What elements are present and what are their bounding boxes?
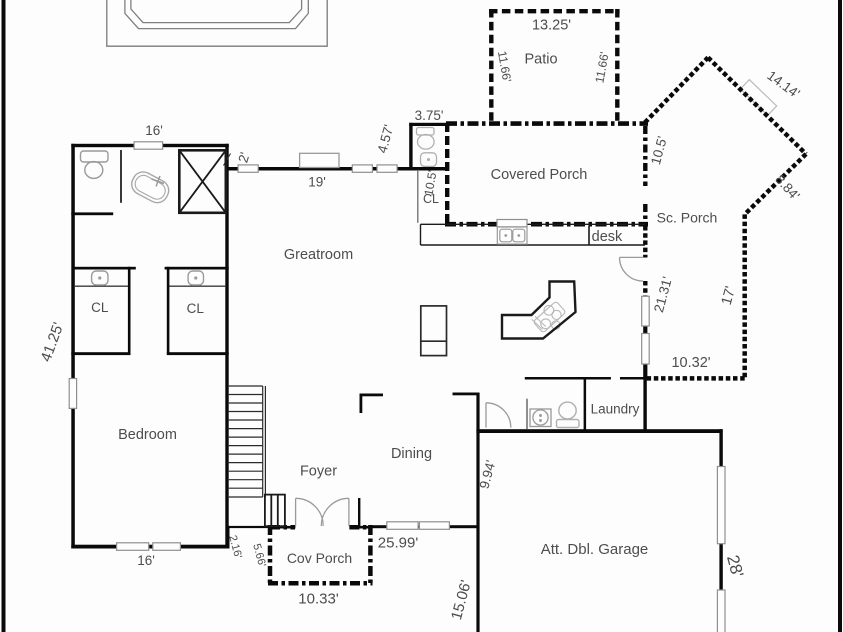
svg-text:Att. Dbl. Garage: Att. Dbl. Garage [541,541,649,558]
svg-text:19': 19' [308,175,326,190]
svg-text:Cov Porch: Cov Porch [287,550,352,566]
svg-text:Laundry: Laundry [591,402,640,417]
svg-text:Patio: Patio [524,52,557,68]
svg-text:desk: desk [592,229,623,245]
svg-text:16': 16' [145,123,163,138]
svg-text:10.33': 10.33' [298,591,339,608]
svg-text:16': 16' [137,553,155,568]
svg-text:Sc. Porch: Sc. Porch [657,210,718,226]
svg-text:Covered Porch: Covered Porch [491,167,588,183]
svg-text:10.32': 10.32' [671,355,710,371]
svg-text:CL: CL [91,300,109,315]
svg-text:Greatroom: Greatroom [284,247,353,263]
svg-text:13.25': 13.25' [532,18,571,34]
svg-text:25.99': 25.99' [378,535,419,552]
svg-text:CL: CL [187,301,205,316]
svg-text:CL: CL [423,192,439,206]
svg-text:Foyer: Foyer [300,464,337,480]
svg-text:Bedroom: Bedroom [118,427,177,443]
svg-text:Dining: Dining [391,446,432,462]
svg-text:3.75': 3.75' [415,108,444,123]
